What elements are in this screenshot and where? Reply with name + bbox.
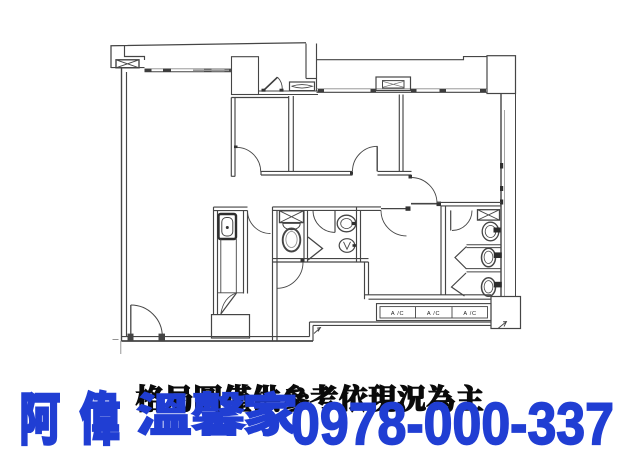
svg-text:A /C: A /C xyxy=(463,311,476,317)
svg-text:A /C: A /C xyxy=(391,311,404,317)
svg-text:A /C: A /C xyxy=(427,311,440,317)
svg-text:0978-000-337: 0978-000-337 xyxy=(291,391,614,452)
